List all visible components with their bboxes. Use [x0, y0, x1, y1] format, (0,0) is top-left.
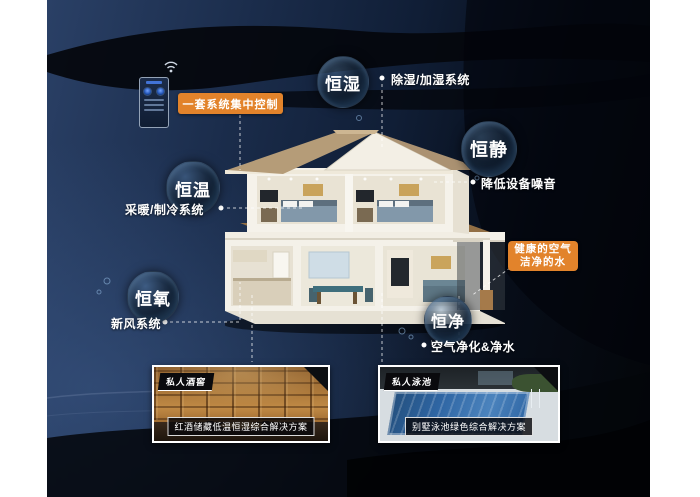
infographic-canvas: 一套系统集中控制 恒湿 恒静 恒温 恒氧 恒净 除湿/加湿系统 降低设备噪音 采… — [47, 0, 650, 497]
pool-glass — [478, 371, 514, 384]
wine-cellar-tag: 私人酒窖 — [158, 373, 215, 391]
control-panel-row — [144, 104, 164, 106]
annotation-heating-cooling: 采暖/制冷系统 — [125, 201, 204, 218]
pool-ladder-icon — [531, 389, 540, 408]
annotation-fresh-air: 新风系统 — [111, 315, 161, 332]
central-control-label: 一套系统集中控制 — [178, 93, 283, 114]
wifi-icon — [163, 60, 179, 73]
bubble-constant-purity: 恒净 — [424, 296, 472, 344]
pool-tag: 私人泳池 — [384, 373, 441, 391]
callout-line2: 洁净的水 — [520, 256, 566, 269]
knob-icon — [156, 87, 165, 96]
annotation-noise-reduction: 降低设备噪音 — [481, 175, 556, 192]
corner-fold-icon — [534, 367, 558, 391]
control-panel-knobs — [140, 87, 168, 96]
annotation-air-water-purify: 空气净化&净水 — [431, 338, 515, 355]
annotation-dehumidify-system: 除湿/加湿系统 — [391, 71, 470, 88]
pool-caption: 别墅泳池绿色综合解决方案 — [405, 417, 533, 436]
control-panel-titlebar — [146, 81, 162, 84]
corner-fold-icon — [304, 367, 328, 391]
wine-cellar-card: 私人酒窖 红酒储藏低温恒湿综合解决方案 — [152, 365, 330, 443]
control-panel-row — [144, 99, 164, 101]
bubble-constant-humidity: 恒湿 — [317, 56, 369, 108]
control-panel-row — [144, 109, 164, 111]
callout-line1: 健康的空气 — [514, 243, 572, 256]
knob-icon — [143, 87, 152, 96]
wine-cellar-caption: 红酒储藏低温恒湿综合解决方案 — [167, 417, 314, 436]
bubble-constant-quiet: 恒静 — [461, 121, 517, 177]
infographic-stage: 一套系统集中控制 恒湿 恒静 恒温 恒氧 恒净 除湿/加湿系统 降低设备噪音 采… — [0, 0, 700, 497]
control-panel-device — [139, 77, 169, 128]
healthy-air-water-callout: 健康的空气 洁净的水 — [508, 241, 578, 271]
pool-card: 私人泳池 别墅泳池绿色综合解决方案 — [378, 365, 560, 443]
